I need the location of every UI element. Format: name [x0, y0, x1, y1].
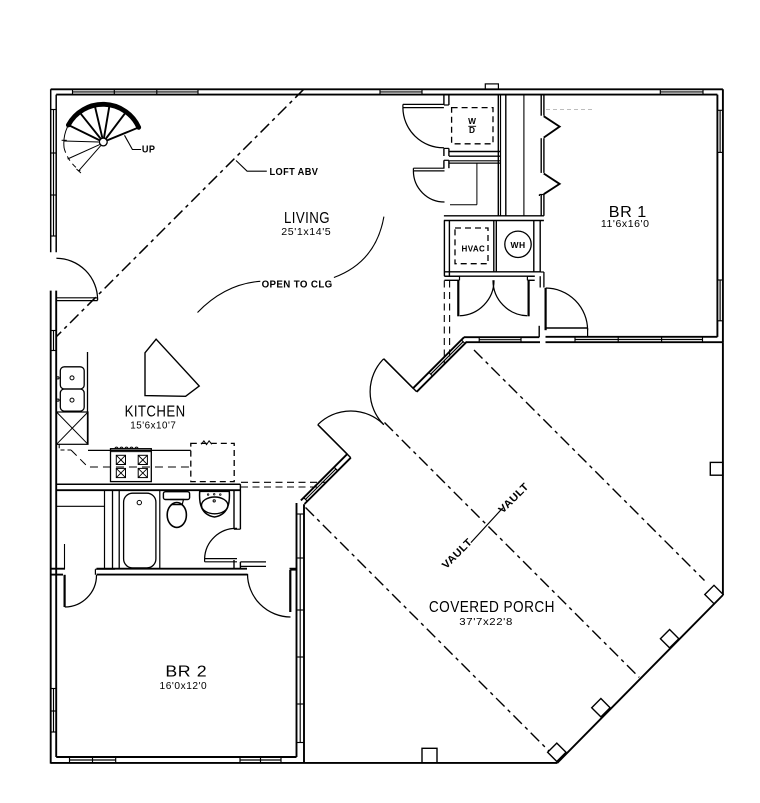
svg-text:HVAC: HVAC — [462, 243, 486, 253]
svg-text:25'1x14'5: 25'1x14'5 — [281, 227, 331, 238]
svg-text:LIVING: LIVING — [284, 210, 330, 227]
svg-text:WH: WH — [511, 240, 526, 250]
svg-text:UP: UP — [142, 144, 155, 156]
svg-text:VAULT: VAULT — [496, 481, 531, 516]
svg-text:BR 2: BR 2 — [165, 664, 207, 681]
svg-text:COVERED PORCH: COVERED PORCH — [429, 599, 555, 616]
svg-text:15'6x10'7: 15'6x10'7 — [130, 421, 176, 432]
svg-text:KITCHEN: KITCHEN — [125, 403, 186, 420]
svg-text:16'0x12'0: 16'0x12'0 — [160, 681, 208, 692]
svg-text:VAULT: VAULT — [440, 536, 475, 571]
svg-text:37'7x22'8: 37'7x22'8 — [459, 617, 513, 628]
svg-text:11'6x16'0: 11'6x16'0 — [601, 219, 650, 230]
svg-text:LOFT ABV: LOFT ABV — [270, 166, 319, 178]
svg-text:OPEN TO CLG: OPEN TO CLG — [262, 278, 333, 290]
